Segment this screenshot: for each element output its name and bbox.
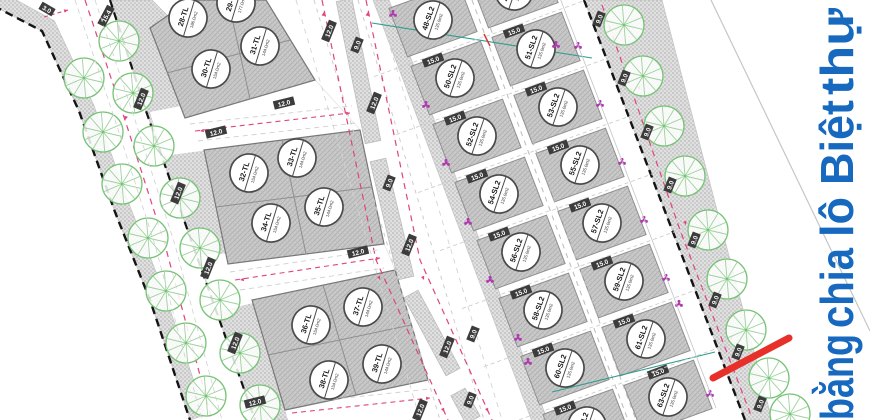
svg-text:bằng: bằng [811, 334, 863, 420]
svg-text:thự: thự [811, 7, 863, 95]
svg-text:Biệt: Biệt [811, 100, 863, 185]
svg-text:lô: lô [811, 197, 863, 237]
svg-text:chia: chia [811, 248, 863, 328]
